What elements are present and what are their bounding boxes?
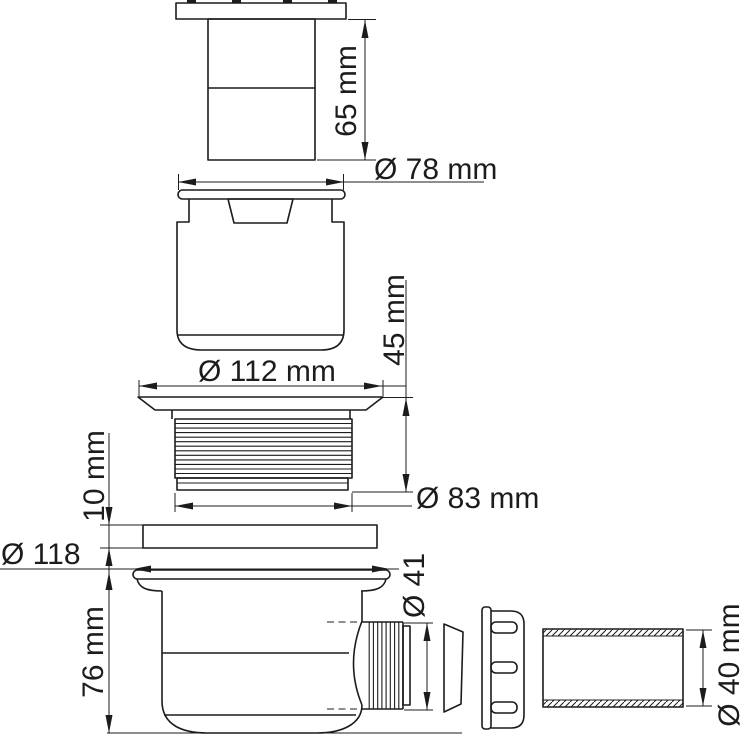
dim-label-40mm: Ø 40 mm [713,603,740,726]
cap-grate-slot [232,0,241,4]
dim-label-45mm: 45 mm [378,274,411,366]
dim-label-78mm: Ø 78 mm [374,153,497,186]
dim-label-65mm: 65 mm [330,45,363,137]
cap-part-view [176,0,346,160]
compression-nut-view [482,607,524,729]
cap-body [208,19,315,160]
dimension-body-flange-diameter: Ø 118 [0,538,399,573]
strainer-insert-view [177,190,345,350]
thread-collar [177,478,348,490]
insert-cup-outline [177,199,344,350]
dimension-cap-flange-diameter: Ø 78 mm [178,153,497,190]
gasket-view [143,525,377,548]
dim-label-118: Ø 118 [1,538,81,571]
pipe-wall-hatch-bottom [543,700,683,707]
dim-label-41: Ø 41 [398,553,431,618]
dim-label-10mm: 10 mm [78,430,111,522]
dimension-insert-flange-diameter: Ø 112 mm [139,355,406,396]
cap-grate-slot [283,0,292,4]
nut-rib [491,622,517,633]
nut-rib [491,702,517,713]
pipe-wall-hatch-top [543,629,683,636]
body-flange [133,570,390,579]
dimension-thread-diameter: Ø 83 mm [175,482,539,515]
body-flange-rim-left [137,579,162,591]
gasket [143,525,377,548]
dim-label-112mm: Ø 112 mm [198,355,336,388]
outlet-thread [362,622,410,709]
waste-pipe-view [543,629,683,707]
cone-washer-view [444,624,463,712]
pipe-outline [543,629,683,707]
cap-grate-slot [328,0,337,4]
cone-washer [444,624,463,712]
technical-drawing-page: 65 mm Ø 78 mm Ø 112 mm 45 mm [0,0,740,737]
insert-disk [178,190,345,199]
outlet-lip [403,626,410,705]
seal-flange [138,397,383,410]
nut-flange-plate [482,607,491,729]
dim-label-76mm: 76 mm [77,606,110,698]
cap-flange [176,3,346,19]
body-bottom [162,701,362,733]
dim-label-83mm: Ø 83 mm [416,482,539,515]
body-flange-rim-right [361,579,386,591]
thread-ridges [175,424,352,474]
nut-body [491,611,524,728]
dimension-cap-height: 65 mm [317,20,376,161]
outlet-fillet-arc [354,621,363,705]
dimension-pipe-diameter: Ø 40 mm [686,603,740,726]
nut-rib [491,662,517,673]
drain-assembly-drawing: 65 mm Ø 78 mm Ø 112 mm 45 mm [0,0,740,737]
cap-grate-slot [187,0,196,4]
dimension-body-height: 76 mm [77,572,113,733]
insert-neck [228,199,293,223]
threaded-flange-view [138,397,383,490]
